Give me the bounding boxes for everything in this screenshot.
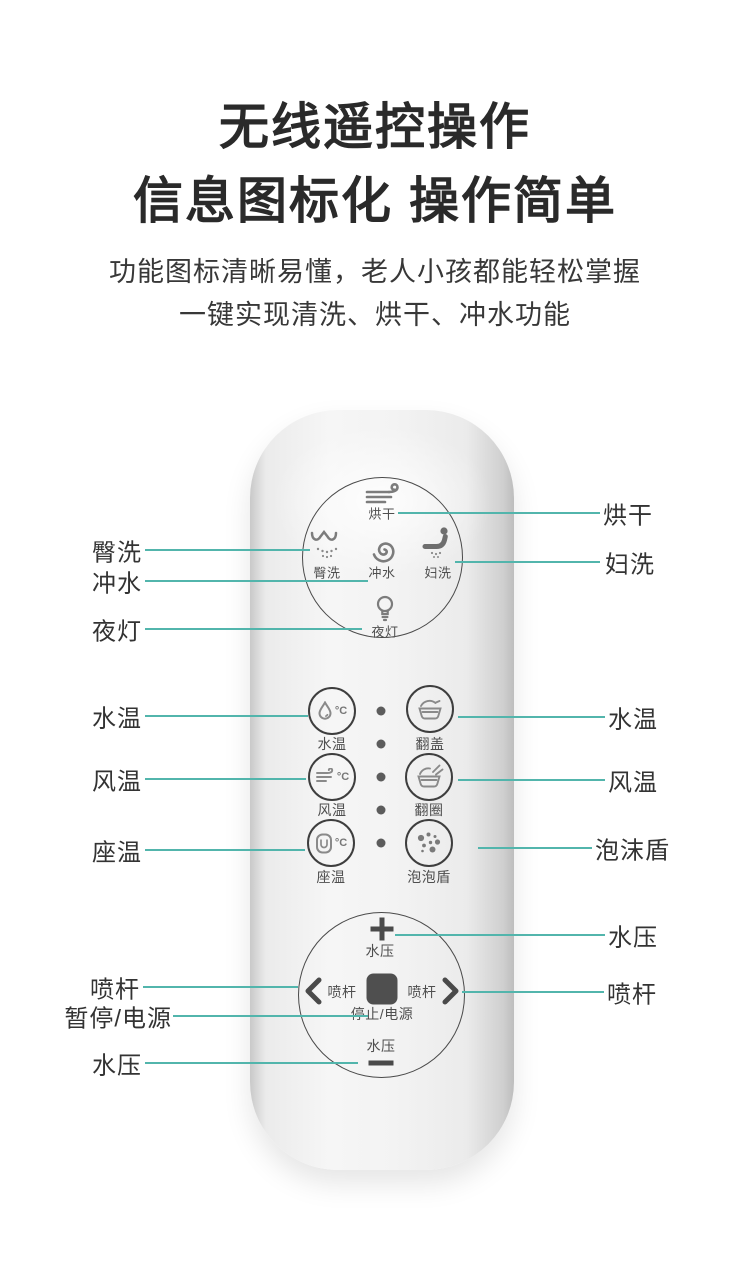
- led-dot: [377, 773, 386, 782]
- callout-line: [173, 1015, 368, 1017]
- led-dot: [377, 839, 386, 848]
- callout-label-night-light: 夜灯: [92, 612, 142, 647]
- callout-label-seat-temp: 座温: [92, 833, 142, 868]
- dry-button-label: 烘干: [368, 504, 395, 523]
- water-pressure-plus-icon: [369, 916, 396, 943]
- toilet-ring-icon: [414, 763, 444, 791]
- water-pressure-up-label: 水压: [366, 941, 395, 961]
- callout-line: [455, 561, 600, 563]
- subtitle-line1: 功能图标清晰易懂，老人小孩都能轻松掌握: [0, 250, 750, 289]
- callout-label-water-pressure-right: 水压: [608, 918, 658, 953]
- led-dot: [377, 740, 386, 749]
- water-temp-unit: °C: [335, 705, 347, 717]
- hip-wash-button-label: 臀洗: [313, 563, 340, 582]
- water-pressure-minus-icon: [369, 1061, 394, 1066]
- bubble-shield-button: [405, 819, 453, 867]
- flip-ring-button: [405, 753, 453, 801]
- spray-rod-right-label: 喷杆: [408, 982, 437, 1002]
- lady-wash-icon: [419, 526, 453, 560]
- wind-temp-label: 风温: [318, 800, 347, 820]
- callout-line: [145, 549, 310, 551]
- wind-temp-button: °C: [308, 753, 356, 801]
- flush-button-label: 冲水: [368, 563, 395, 582]
- callout-line: [458, 716, 605, 718]
- lady-wash-button-label: 妇洗: [424, 563, 451, 582]
- seat-temp-label: 座温: [317, 867, 346, 887]
- callout-label-water-temp-left: 水温: [92, 699, 142, 734]
- led-dot: [377, 806, 386, 815]
- callout-line: [145, 778, 306, 780]
- flip-lid-label: 翻盖: [416, 734, 445, 754]
- remote-body: 烘干 臀洗 冲水: [250, 410, 514, 1170]
- callout-line: [462, 991, 604, 993]
- spray-rod-left-chevron-icon: [304, 977, 322, 1005]
- callout-line: [145, 849, 305, 851]
- spray-rod-right-chevron-icon: [442, 977, 460, 1005]
- stop-power-label: 停止/电源: [351, 1004, 413, 1024]
- night-light-bulb-icon: [373, 595, 397, 623]
- stop-power-button: [367, 974, 398, 1005]
- callout-label-wind-temp-left: 风温: [92, 762, 142, 797]
- callout-line: [145, 628, 362, 630]
- callout-line: [143, 986, 298, 988]
- seat-temp-unit: °C: [335, 837, 347, 849]
- water-drop-icon: [317, 701, 333, 721]
- callout-line: [145, 1062, 358, 1064]
- seat-icon: [315, 833, 333, 854]
- spray-rod-left-label: 喷杆: [328, 982, 357, 1002]
- callout-label-wind-temp-right: 风温: [608, 763, 658, 798]
- callout-line: [145, 715, 308, 717]
- callout-label-hip-wash: 臀洗: [92, 533, 142, 568]
- callout-label-pause-power: 暂停/电源: [64, 999, 172, 1034]
- hip-wash-icon: [307, 530, 347, 560]
- callout-label-lady-wash: 妇洗: [605, 545, 655, 580]
- page-title-line2: 信息图标化 操作简单: [0, 174, 750, 229]
- flip-ring-label: 翻圈: [415, 800, 444, 820]
- callout-label-water-temp-right: 水温: [608, 700, 658, 735]
- stop-square-icon: [367, 974, 398, 1005]
- wind-small-icon: [315, 768, 335, 786]
- water-temp-label: 水温: [318, 734, 347, 754]
- page-title-line1: 无线遥控操作: [0, 100, 750, 155]
- toilet-lid-icon: [415, 695, 445, 723]
- bubble-shield-label: 泡泡盾: [407, 867, 451, 887]
- callout-label-flush: 冲水: [92, 564, 142, 599]
- callout-label-dry: 烘干: [603, 496, 653, 531]
- callout-label-foam-shield: 泡沫盾: [595, 831, 670, 866]
- led-dot: [377, 707, 386, 716]
- callout-label-water-pressure-left: 水压: [92, 1046, 142, 1081]
- subtitle-line2: 一键实现清洗、烘干、冲水功能: [0, 293, 750, 332]
- callout-line: [398, 512, 600, 514]
- night-light-button-label: 夜灯: [371, 622, 398, 641]
- callout-line: [145, 580, 368, 582]
- bubbles-icon: [414, 830, 444, 856]
- callout-line: [395, 934, 605, 936]
- flip-lid-button: [406, 685, 454, 733]
- callout-line: [478, 847, 592, 849]
- seat-temp-button: °C: [307, 819, 355, 867]
- page: 无线遥控操作 信息图标化 操作简单 功能图标清晰易懂，老人小孩都能轻松掌握 一键…: [0, 0, 750, 1279]
- water-pressure-down-label: 水压: [367, 1036, 396, 1056]
- wind-temp-unit: °C: [337, 771, 349, 783]
- flush-spiral-icon: [369, 535, 399, 565]
- callout-line: [458, 779, 605, 781]
- callout-label-spray-rod-right: 喷杆: [607, 975, 657, 1010]
- water-temp-button: °C: [308, 687, 356, 735]
